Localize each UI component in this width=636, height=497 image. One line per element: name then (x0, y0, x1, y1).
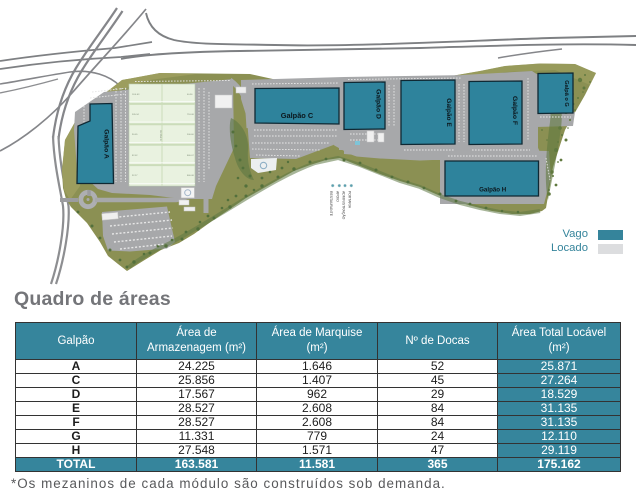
svg-text:82.02: 82.02 (132, 155, 138, 157)
svg-text:Galpão H: Galpão H (479, 186, 507, 193)
svg-text:Galpã o G: Galpã o G (563, 80, 569, 106)
svg-text:ADMINISTRAÇÃO: ADMINISTRAÇÃO (341, 191, 346, 220)
svg-text:APOIO: APOIO (336, 191, 340, 202)
svg-text:Galpão D: Galpão D (375, 89, 382, 119)
svg-text:718.08: 718.08 (187, 114, 194, 116)
svg-text:305.34: 305.34 (132, 114, 139, 116)
svg-text:Galpão F: Galpão F (511, 96, 518, 125)
svg-text:Galpão C: Galpão C (281, 111, 314, 120)
svg-text:Galpão E: Galpão E (445, 98, 452, 127)
svg-text:860.08: 860.08 (187, 175, 194, 177)
svg-text:Galpão A: Galpão A (103, 129, 110, 159)
svg-text:300.60: 300.60 (187, 134, 194, 136)
svg-text:92.27: 92.27 (132, 175, 138, 177)
svg-text:90.05: 90.05 (132, 134, 138, 136)
svg-text:60.36: 60.36 (187, 94, 193, 96)
svg-text:18.6.63: 18.6.63 (132, 94, 140, 96)
svg-text:PORTARIA: PORTARIA (348, 191, 352, 209)
svg-text:CM PNE R: CM PNE R (159, 130, 161, 141)
svg-text:RESTAURANTE: RESTAURANTE (329, 191, 333, 217)
svg-text:860.07: 860.07 (187, 155, 194, 157)
